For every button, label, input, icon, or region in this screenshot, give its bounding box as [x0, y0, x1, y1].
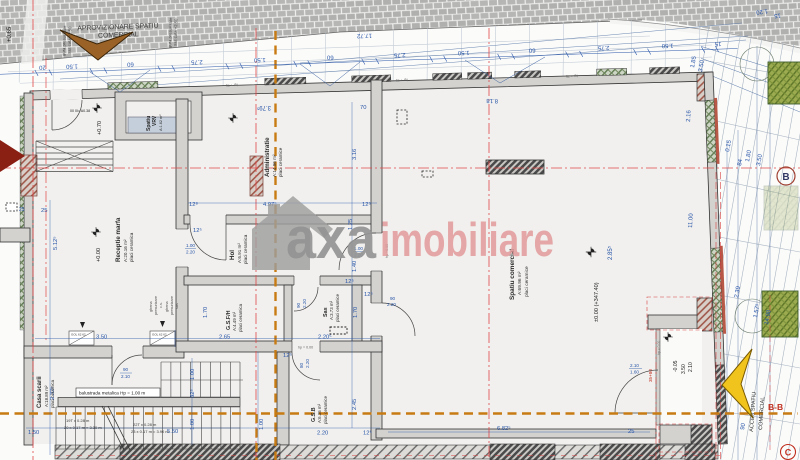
svg-text:60: 60 [126, 61, 134, 67]
svg-text:c.s.: c.s. [159, 302, 163, 308]
svg-text:2.85⁵: 2.85⁵ [607, 245, 614, 260]
svg-text:Receptie marfa: Receptie marfa [115, 217, 122, 262]
svg-text:3.50: 3.50 [681, 364, 687, 374]
svg-text:5.12⁵: 5.12⁵ [52, 236, 59, 250]
svg-text:C: C [785, 448, 792, 458]
svg-text:32⁵: 32⁵ [189, 389, 196, 398]
svg-text:1.00: 1.00 [190, 419, 196, 430]
svg-text:1.50: 1.50 [28, 430, 39, 436]
svg-text:hp + 75: hp + 75 [396, 78, 408, 83]
svg-text:1.50: 1.50 [661, 42, 674, 48]
svg-text:15: 15 [714, 40, 722, 46]
svg-text:A:3.73 m²: A:3.73 m² [329, 300, 334, 320]
svg-text:hp = 0.00: hp = 0.00 [657, 341, 661, 355]
svg-text:2.20: 2.20 [302, 299, 307, 308]
svg-text:A:6.91 m²: A:6.91 m² [237, 243, 242, 263]
svg-text:2.75: 2.75 [597, 44, 610, 50]
svg-text:presurizare: presurizare [154, 296, 158, 315]
svg-text:balustrada metalica Hp = 1.00: balustrada metalica Hp = 1.00 m [79, 391, 145, 396]
svg-text:hp + 75: hp + 75 [226, 83, 238, 88]
svg-text:GOL 62 62: GOL 62 62 [71, 333, 86, 337]
svg-text:1.00: 1.00 [190, 369, 196, 380]
svg-text:6.82⁵: 6.82⁵ [497, 425, 511, 432]
svg-text:hp + 75: hp + 75 [566, 74, 578, 79]
svg-text:2.20: 2.20 [186, 250, 195, 255]
svg-text:2.20⁵: 2.20⁵ [318, 334, 332, 341]
svg-text:3.16: 3.16 [352, 149, 358, 160]
svg-text:A:69.96 m²: A:69.96 m² [517, 271, 523, 295]
svg-text:-0.05: -0.05 [673, 360, 679, 372]
svg-text:60: 60 [528, 47, 536, 53]
svg-text:00 0l= A0.38: 00 0l= A0.38 [70, 109, 90, 113]
svg-text:90: 90 [390, 296, 396, 301]
svg-text:A:4.49 m²: A:4.49 m² [232, 311, 237, 331]
svg-text:1.00: 1.00 [259, 419, 265, 430]
svg-text:2.75: 2.75 [393, 51, 406, 57]
svg-text:80: 80 [299, 362, 304, 368]
svg-text:25: 25 [19, 207, 25, 213]
svg-text:2.45: 2.45 [352, 399, 358, 410]
svg-text:sas: sas [175, 303, 179, 309]
svg-text:23 x 0.17 m = 3.90 m: 23 x 0.17 m = 3.90 m [131, 429, 169, 434]
svg-text:12⁵: 12⁵ [364, 291, 373, 298]
svg-text:ghena: ghena [165, 301, 169, 312]
svg-text:11.00: 11.00 [688, 213, 695, 229]
svg-text:placi ceramice: placi ceramice [524, 266, 530, 297]
svg-text:1.50: 1.50 [253, 56, 266, 62]
svg-text:12⁵: 12⁵ [363, 430, 372, 437]
svg-text:A:14.96 m²: A:14.96 m² [272, 154, 277, 177]
svg-text:+0.65: +0.65 [7, 26, 13, 42]
svg-text:35+80: 35+80 [648, 369, 653, 382]
svg-text:5.50: 5.50 [167, 429, 178, 435]
svg-text:placi ceramice: placi ceramice [323, 395, 328, 424]
svg-text:placi ceramice: placi ceramice [278, 147, 283, 177]
svg-text:12⁵: 12⁵ [283, 352, 292, 359]
svg-text:2.10: 2.10 [121, 374, 130, 379]
svg-text:8.18: 8.18 [486, 97, 499, 103]
svg-text:60: 60 [326, 54, 334, 60]
svg-text:1.70: 1.70 [353, 307, 359, 318]
svg-text:hp = 0.00: hp = 0.00 [298, 346, 313, 350]
svg-text:2.16: 2.16 [686, 109, 693, 122]
svg-text:A:20.16 m²: A:20.16 m² [123, 239, 128, 262]
svg-text:Hol: Hol [229, 250, 236, 260]
svg-text:±0.00 (+347.40): ±0.00 (+347.40) [594, 282, 600, 322]
svg-text:17.72: 17.72 [356, 32, 372, 39]
svg-text:B: B [782, 172, 789, 183]
svg-text:1.70: 1.70 [203, 307, 209, 318]
svg-text:imobiliare: imobiliare [380, 213, 554, 266]
svg-text:3.50: 3.50 [96, 335, 107, 341]
svg-text:1.60: 1.60 [630, 370, 639, 375]
svg-text:placi ceramica: placi ceramica [243, 234, 248, 264]
svg-text:presurizare: presurizare [170, 296, 174, 315]
svg-text:B-B: B-B [768, 402, 783, 412]
svg-text:A:18.89 m²: A:18.89 m² [44, 385, 49, 407]
svg-text:2.20: 2.20 [387, 302, 396, 307]
svg-text:20: 20 [38, 64, 46, 70]
svg-text:sas cota +2.50: sas cota +2.50 [173, 18, 179, 46]
svg-text:placi ceramica: placi ceramica [238, 303, 243, 332]
svg-text:25: 25 [41, 208, 47, 214]
svg-text:sas cota +2.50: sas cota +2.50 [67, 26, 73, 54]
svg-text:2.75: 2.75 [190, 58, 203, 64]
svg-text:12⁵: 12⁵ [193, 227, 202, 234]
svg-text:VRV: VRV [152, 115, 158, 126]
svg-text:A:6.35 m²: A:6.35 m² [317, 403, 322, 423]
svg-text:12⁵: 12⁵ [345, 278, 354, 285]
svg-text:axa: axa [286, 206, 377, 271]
svg-text:70: 70 [360, 105, 366, 111]
svg-text:+0.70: +0.70 [97, 121, 103, 135]
svg-text:22T x 0.28 m: 22T x 0.28 m [133, 422, 157, 427]
svg-text:1.50: 1.50 [65, 63, 78, 69]
svg-text:25: 25 [628, 429, 634, 435]
svg-text:ghena: ghena [149, 301, 153, 312]
svg-text:2.65: 2.65 [219, 335, 230, 341]
svg-text:20 x 0.17 m = 3.30 m: 20 x 0.17 m = 3.30 m [64, 425, 102, 430]
svg-text:2.20: 2.20 [305, 359, 310, 368]
svg-text:2.10: 2.10 [630, 363, 639, 368]
svg-text:2.10: 2.10 [688, 362, 694, 372]
svg-text:+0.00: +0.00 [96, 248, 102, 262]
svg-text:19T x 0.28 m: 19T x 0.28 m [66, 418, 90, 423]
svg-text:GOL 62 62: GOL 62 62 [152, 333, 167, 337]
svg-text:1.00: 1.00 [186, 243, 195, 248]
svg-text:12⁸: 12⁸ [189, 201, 198, 208]
svg-text:Casa scarii: Casa scarii [37, 376, 43, 408]
svg-text:2.20: 2.20 [317, 431, 328, 437]
svg-text:placi ceramica: placi ceramica [50, 379, 55, 408]
svg-text:90: 90 [123, 367, 129, 372]
svg-text:placi ceramica: placi ceramica [129, 232, 134, 262]
svg-text:A:1.62 m²: A:1.62 m² [159, 114, 163, 131]
svg-text:3.79⁵: 3.79⁵ [256, 104, 271, 111]
svg-text:90: 90 [296, 302, 301, 308]
svg-text:Administratie: Administratie [264, 137, 271, 177]
svg-text:1.50: 1.50 [457, 49, 470, 55]
svg-text:placi ceramice: placi ceramice [335, 293, 340, 322]
